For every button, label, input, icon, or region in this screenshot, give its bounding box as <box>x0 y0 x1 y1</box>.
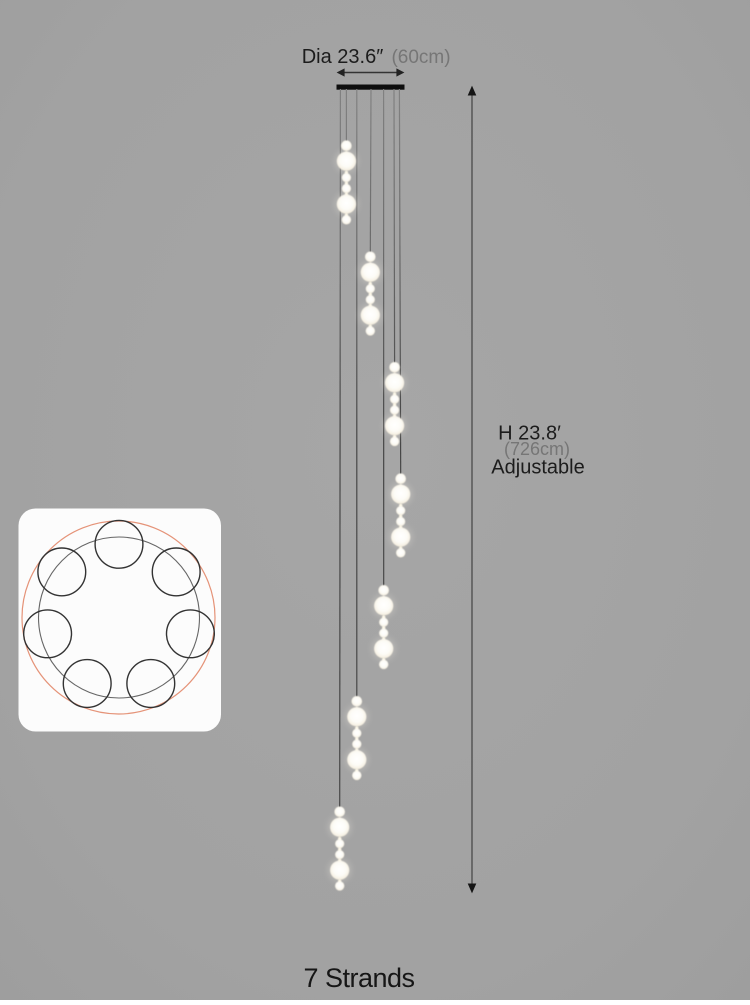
svg-text:Dia 23.6″: Dia 23.6″ <box>302 46 384 68</box>
svg-text:Adjustable: Adjustable <box>491 457 584 479</box>
svg-text:(60cm): (60cm) <box>391 47 450 68</box>
svg-text:7 Strands: 7 Strands <box>303 963 414 993</box>
